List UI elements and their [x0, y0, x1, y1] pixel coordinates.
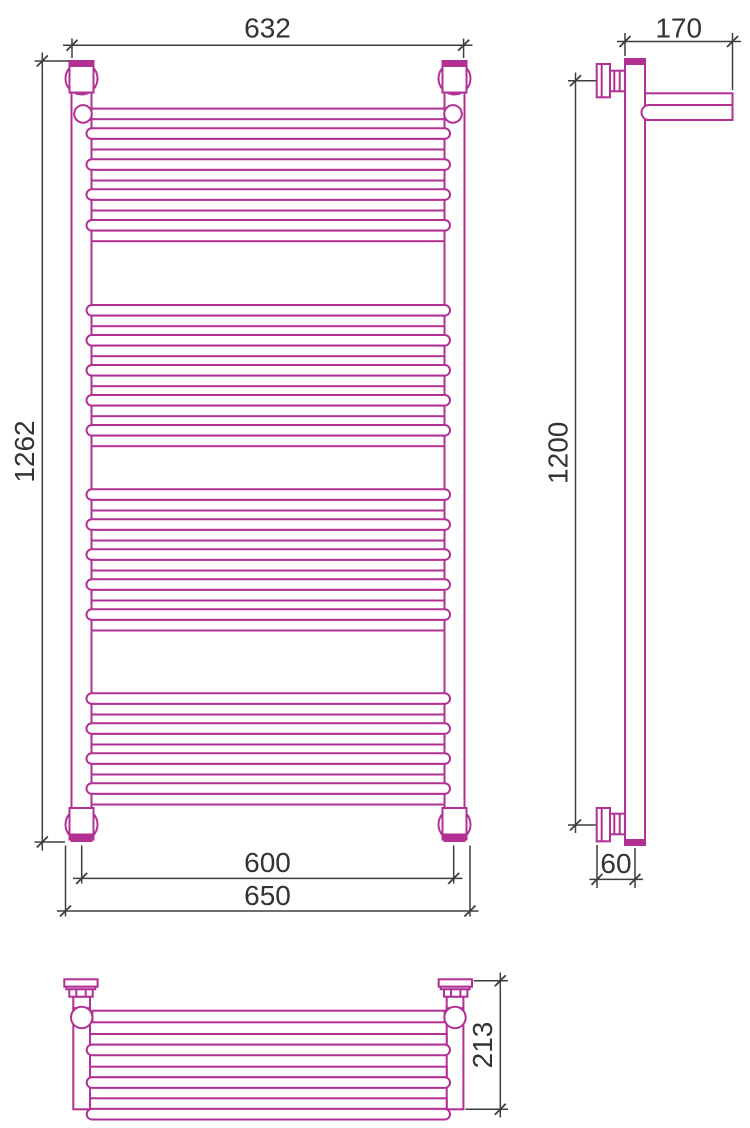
rung-tube-straight [92, 346, 445, 357]
dim-label-650: 650 [244, 880, 291, 911]
side-rail-top-cap [625, 59, 645, 64]
rung-tube-capsule [87, 305, 451, 316]
rung-tube-straight [92, 376, 445, 387]
rung-tube-capsule [87, 1109, 450, 1120]
plan-view [64, 979, 472, 1119]
technical-drawing-page: 632 1262 600 650 [0, 0, 750, 1128]
rung-tube-capsule [87, 723, 451, 734]
rung-tube-straight [92, 406, 445, 417]
rung-tube-straight [90, 1067, 447, 1078]
rung-tube-capsule [87, 519, 451, 530]
side-rail [625, 59, 645, 845]
rung-tube-capsule [87, 783, 451, 794]
dim-label-170: 170 [655, 13, 702, 44]
rung-tube-capsule [87, 549, 451, 560]
rung-tube-capsule [87, 189, 451, 200]
side-rail-bottom-cap [625, 840, 645, 845]
dim-wall-offset-60: 60 [590, 845, 644, 888]
front-top-rung-left-boss [74, 105, 92, 123]
dim-label-213: 213 [467, 1022, 498, 1069]
plan-right-rail-boss [444, 1007, 465, 1028]
dim-label-600: 600 [244, 847, 291, 878]
rung-tube-straight [92, 316, 445, 327]
rung-tube-capsule [87, 609, 451, 620]
dim-label-1200: 1200 [543, 422, 574, 484]
dim-axis-width-600: 600 [73, 846, 463, 884]
front-top-rung-right-boss [444, 105, 462, 123]
side-bracket-top [597, 64, 625, 97]
rung-tube-straight [92, 590, 445, 601]
front-view [66, 61, 471, 841]
rung-tube-straight [92, 704, 445, 715]
rung-tube-capsule [87, 1077, 450, 1088]
plan-shelf-tubes [87, 1034, 450, 1120]
rung-tube-straight [92, 436, 445, 447]
side-shelf-arm [642, 93, 733, 120]
rung-tube-straight [92, 170, 445, 181]
dim-mount-height-1200: 1200 [543, 73, 597, 834]
rung-tube-straight [90, 1098, 447, 1109]
dim-label-1262: 1262 [9, 420, 40, 482]
rung-tube-straight [92, 231, 445, 242]
front-bracket-top-right [439, 61, 471, 95]
front-top-rung [92, 109, 445, 120]
plan-left-rail-boss [71, 1007, 92, 1028]
dim-height-1262: 1262 [9, 53, 69, 851]
front-bracket-bottom-left [66, 808, 98, 841]
rung-tube-capsule [87, 395, 451, 406]
rung-tube-capsule [87, 489, 451, 500]
rung-tube-straight [92, 764, 445, 775]
dim-depth-213: 213 [465, 973, 508, 1118]
rung-tube-capsule [87, 425, 451, 436]
rung-tube-straight [90, 1034, 447, 1045]
front-bracket-bottom-right [439, 808, 471, 841]
rung-tube-capsule [87, 128, 451, 139]
rung-tube-capsule [87, 579, 451, 590]
side-bracket-bottom [597, 808, 625, 841]
front-bracket-top-left [66, 61, 98, 95]
rung-tube-capsule [87, 693, 451, 704]
rung-tube-capsule [87, 159, 451, 170]
rung-tube-straight [92, 139, 445, 150]
rung-tube-straight [92, 500, 445, 511]
rung-tube-straight [92, 620, 445, 631]
front-rung-tubes [87, 128, 451, 804]
dim-top-width-632: 632 [63, 13, 473, 59]
rung-tube-capsule [87, 365, 451, 376]
rung-tube-straight [92, 560, 445, 571]
rung-tube-capsule [87, 220, 451, 231]
drawing-svg: 632 1262 600 650 [0, 0, 750, 1128]
dim-label-60: 60 [600, 848, 631, 879]
rung-tube-capsule [87, 335, 451, 346]
dim-label-632: 632 [244, 13, 291, 44]
rung-tube-straight [92, 734, 445, 745]
rung-tube-capsule [87, 753, 451, 764]
side-view [597, 59, 733, 845]
rung-tube-straight [92, 530, 445, 541]
plan-top-rung [92, 1011, 444, 1023]
rung-tube-capsule [87, 1045, 450, 1056]
rung-tube-straight [92, 200, 445, 211]
rung-tube-straight [92, 794, 445, 805]
